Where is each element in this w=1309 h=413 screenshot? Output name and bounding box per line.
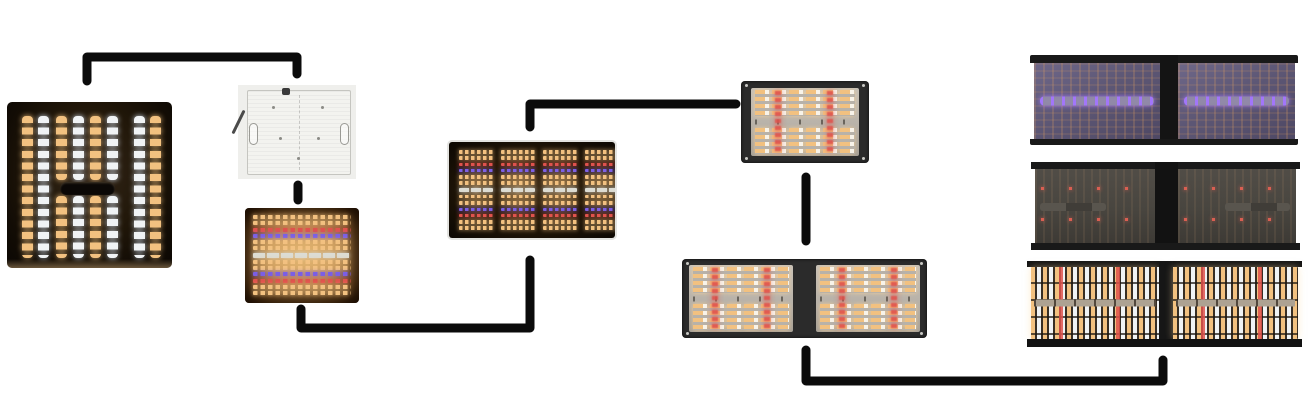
screw (745, 157, 748, 160)
led-row-warm (501, 201, 535, 205)
led-cluster-rows (693, 267, 789, 293)
led-row-warm (459, 181, 493, 185)
link-square-to-back (87, 57, 297, 81)
lit-board-right (1173, 267, 1298, 339)
screw (920, 332, 923, 335)
led-row-red (585, 163, 615, 167)
led-row-warm (543, 175, 577, 179)
center-hardware-strip (1225, 203, 1290, 211)
led-board-right (816, 265, 920, 332)
led-row-warm (543, 220, 577, 224)
led-row-blue (253, 272, 351, 276)
photo-square-board-lit (7, 102, 172, 268)
led-row-red (585, 214, 615, 218)
red-led-column (712, 268, 718, 329)
screw (321, 106, 324, 109)
screw (862, 157, 865, 160)
photo-board-back-plate (238, 85, 356, 179)
led-column-warm (22, 116, 33, 258)
led-strip-group (543, 150, 577, 230)
led-column-warm (56, 116, 67, 180)
led-cluster-rows (693, 304, 789, 330)
led-cluster-rows (820, 304, 916, 330)
led-row-red (253, 279, 351, 283)
led-row-warm (585, 150, 615, 154)
led-row-silver (585, 188, 615, 193)
led-row-blue (543, 169, 577, 173)
driver-connector (282, 88, 290, 95)
led-row-red (543, 163, 577, 167)
center-hardware-strip (1034, 300, 1156, 307)
screw (745, 84, 748, 87)
led-row-blue (459, 169, 493, 173)
screw (686, 262, 689, 265)
led-row-warm (459, 156, 493, 160)
red-led-dots (1184, 187, 1290, 190)
screw (862, 84, 865, 87)
left-handle-cutout (249, 123, 258, 145)
red-led-column (775, 91, 781, 153)
red-led-column (827, 91, 833, 153)
photo-board-lit-glow (245, 208, 359, 303)
led-row-warm (253, 246, 351, 250)
led-row-warm (585, 175, 615, 179)
center-handle-slot (60, 182, 115, 195)
led-row-warm (585, 195, 615, 199)
right-handle-cutout (340, 123, 349, 145)
led-row-warm (585, 156, 615, 160)
board-left (1035, 169, 1155, 243)
led-row-warm (253, 285, 351, 289)
led-column-warm (90, 116, 101, 180)
led-row-warm (585, 226, 615, 230)
led-row-red (543, 214, 577, 218)
link-dual-to-full (806, 350, 1163, 381)
link-strips-to-framed (530, 104, 736, 127)
screw (317, 137, 320, 140)
led-row-warm (543, 226, 577, 230)
led-row-warm (543, 156, 577, 160)
led-row-blue (459, 208, 493, 212)
led-row-warm (253, 215, 351, 219)
led-row-silver (253, 253, 351, 258)
photo-dual-board-full-spectrum (1027, 261, 1302, 347)
led-strip-group (501, 150, 535, 230)
frame-bar-bottom (1030, 139, 1298, 145)
center-screw-row (820, 296, 916, 301)
led-row-warm (501, 150, 535, 154)
led-row-warm (501, 226, 535, 230)
red-led-column (891, 268, 897, 329)
diagram-canvas (0, 0, 1309, 413)
led-row-blue (543, 208, 577, 212)
power-wire (231, 110, 245, 135)
led-row-warm (459, 201, 493, 205)
led-row-warm (585, 201, 615, 205)
screw (920, 262, 923, 265)
red-led-column (764, 268, 770, 329)
red-led-dots (1041, 218, 1149, 221)
led-row-silver (543, 188, 577, 193)
led-strip-group (459, 150, 493, 230)
led-board (751, 88, 859, 156)
led-row-warm (253, 221, 351, 225)
led-column-cool (73, 196, 84, 258)
frame-bar-bottom (1027, 339, 1302, 347)
led-row-warm (543, 195, 577, 199)
center-divider (1160, 55, 1178, 145)
led-strip-group (585, 150, 615, 230)
led-row-warm (459, 195, 493, 199)
screw (279, 137, 282, 140)
aluminum-back-plate (247, 90, 351, 175)
led-column-warm (150, 116, 161, 258)
led-row-warm (543, 181, 577, 185)
led-row-silver (501, 188, 535, 193)
led-cluster-rows (755, 90, 855, 116)
photo-framed-dual-board (682, 259, 927, 338)
center-hardware-strip (1040, 203, 1106, 211)
led-column-cool (134, 116, 145, 258)
center-screw-row (755, 120, 855, 125)
led-row-silver (459, 188, 493, 193)
photo-dual-board-uv (1030, 55, 1298, 145)
led-row-warm (459, 150, 493, 154)
led-row-warm (543, 150, 577, 154)
led-row-red (501, 163, 535, 167)
led-row-warm (543, 201, 577, 205)
led-row-warm (501, 175, 535, 179)
led-row-warm (459, 175, 493, 179)
led-column-cool (107, 116, 118, 180)
uv-led-strip (1184, 97, 1289, 106)
red-led-dots (1184, 218, 1290, 221)
led-row-blue (501, 208, 535, 212)
led-column-warm (56, 196, 67, 258)
led-cluster-rows (820, 267, 916, 293)
led-row-red (459, 214, 493, 218)
led-column-warm (90, 196, 101, 258)
led-column-cool (38, 116, 49, 258)
photo-framed-board (741, 81, 869, 163)
led-row-red (253, 228, 351, 232)
led-cluster-rows (755, 128, 855, 154)
uv-led-strip (1040, 97, 1154, 106)
led-row-warm (253, 260, 351, 264)
led-row-blue (585, 169, 615, 173)
led-row-blue (253, 234, 351, 238)
frame-bar-bottom (1031, 243, 1300, 250)
led-column-cool (73, 116, 84, 180)
red-led-dots (1041, 187, 1149, 190)
led-row-warm (501, 220, 535, 224)
board-right (1178, 169, 1296, 243)
screw (686, 332, 689, 335)
led-column-cool (107, 196, 118, 258)
photo-dual-board-red-channel (1031, 162, 1300, 250)
led-row-warm (253, 291, 351, 295)
center-divider (1159, 261, 1173, 347)
led-row-warm (501, 195, 535, 199)
led-row-blue (585, 208, 615, 212)
led-row-warm (585, 181, 615, 185)
led-rows (253, 215, 351, 295)
led-row-warm (501, 156, 535, 160)
lit-board-left (1031, 267, 1159, 339)
red-led-column (839, 268, 845, 329)
led-row-warm (501, 181, 535, 185)
led-row-red (501, 214, 535, 218)
led-row-warm (253, 240, 351, 244)
led-row-red (459, 163, 493, 167)
led-row-warm (253, 266, 351, 270)
center-divider (1155, 162, 1178, 250)
photo-board-strip-groups (449, 142, 615, 238)
center-hardware-strip (1176, 300, 1295, 307)
led-row-warm (459, 220, 493, 224)
uv-board-left (1034, 63, 1160, 139)
led-row-warm (585, 220, 615, 224)
screw (272, 106, 275, 109)
led-board-left (689, 265, 793, 332)
table-reflection (7, 259, 172, 268)
uv-board-right (1178, 63, 1295, 139)
center-screw-row (693, 296, 789, 301)
led-row-blue (501, 169, 535, 173)
led-row-warm (459, 226, 493, 230)
